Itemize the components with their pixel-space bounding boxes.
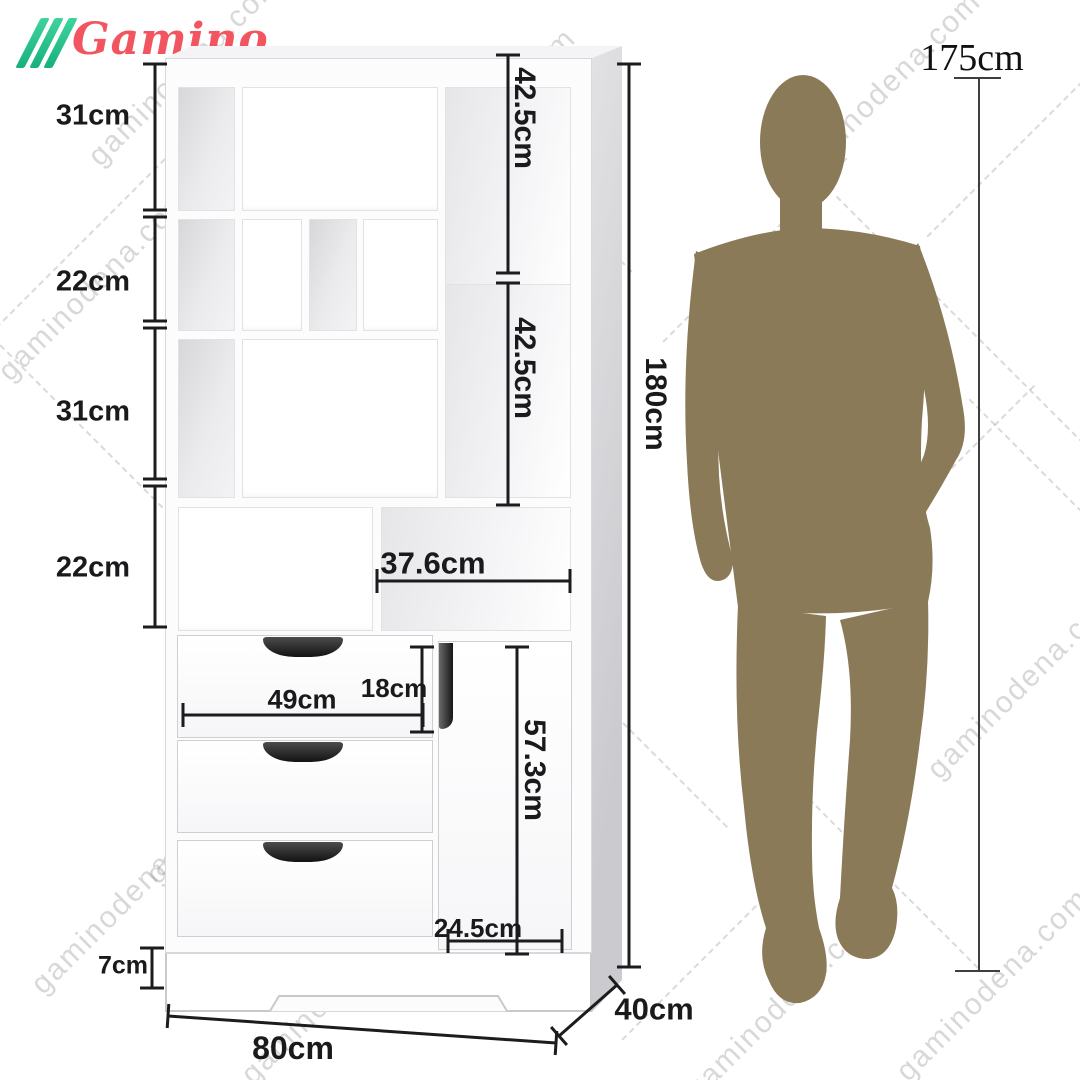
dim-label-right-shelf-bottom: 42.5cm (509, 317, 539, 419)
dim-label-right-shelf-top: 42.5cm (509, 67, 539, 169)
dim-label-base-height: 7cm (98, 954, 148, 979)
dim-label-left-section-4: 22cm (56, 554, 130, 583)
dim-label-drawer-height: 18cm (361, 675, 428, 701)
dim-label-drawer-width: 49cm (267, 687, 336, 714)
person-silhouette (678, 62, 978, 1012)
dim-label-left-section-3: 31cm (56, 398, 130, 427)
person-height-label: 175cm (920, 36, 1023, 80)
dim-label-width: 80cm (252, 1032, 334, 1064)
dim-label-open-shelf-width: 37.6cm (380, 548, 485, 579)
dim-label-depth: 40cm (614, 994, 693, 1025)
dim-label-left-section-1: 31cm (56, 102, 130, 131)
dim-label-door-width: 24.5cm (434, 915, 522, 941)
dim-label-door-height: 57.3cm (519, 719, 549, 821)
product-dimension-diagram: gaminodena.com gaminodena.com gaminodena… (0, 0, 1080, 1080)
dim-label-total-height: 180cm (640, 357, 670, 450)
dim-label-left-section-2: 22cm (56, 268, 130, 297)
